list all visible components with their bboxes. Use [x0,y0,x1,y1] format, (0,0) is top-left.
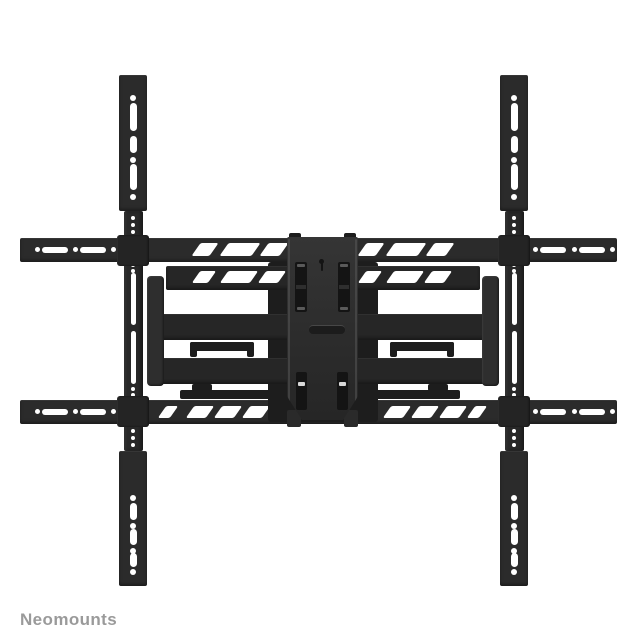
screw-hole [512,443,516,447]
vent-slot [424,271,452,283]
screw-hole [511,194,517,200]
slot-divider [339,285,349,289]
vesa-slot [511,529,518,545]
vent-slot [158,406,178,418]
screw-hole [130,157,136,163]
rail-clamp [117,235,149,266]
screw-hole [131,216,135,220]
vent-slot [242,406,270,418]
vent-slot [258,271,286,283]
screw-hole [131,230,135,234]
screw-hole [572,247,577,252]
rail-clamp [117,396,149,427]
screw-hole [111,247,116,252]
vesa-rail-left-lower [119,451,147,586]
screw-hole [35,409,40,414]
clip-foot [447,342,454,357]
vent-slot [383,406,411,418]
screw-hole [512,436,516,440]
spring-clip-left [190,342,254,357]
vesa-slot [511,103,518,131]
vesa-slot [130,529,137,545]
mounting-slot [80,409,106,415]
vent-slot [192,271,216,283]
vent-slot [439,406,467,418]
screw-hole [130,194,136,200]
slot-highlight [298,382,305,386]
vent-slot [186,406,214,418]
screw-hole [131,429,135,433]
small-clip [192,384,212,391]
vesa-rail-left-upper [119,75,147,211]
adjustment-slot [512,331,517,384]
vesa-slot [511,164,518,190]
keyhole-stem [321,263,323,271]
mounting-slot [540,247,566,253]
arm-elbow-right [482,276,499,386]
clip-foot [390,342,397,357]
vent-slot [411,406,439,418]
vesa-slot [130,103,137,131]
rail-clamp [498,396,530,427]
screw-hole [512,429,516,433]
spring-clip-right [390,342,454,357]
screw-hole [131,436,135,440]
screw-hole [512,387,516,391]
plate-edge-highlight [355,239,357,417]
screw-hole [73,247,78,252]
vent-slot [357,243,384,256]
vent-slot [425,243,454,256]
vesa-slot [130,164,137,190]
center-wall-plate [287,237,358,420]
screw-hole [111,409,116,414]
vent-slot [214,406,242,418]
plate-slot [296,372,307,410]
screw-hole [610,247,615,252]
vent-slot [220,271,258,283]
vent-slot [191,243,218,256]
adjustment-slot [131,331,136,384]
vesa-slot [130,503,137,520]
handle-recess [309,325,345,334]
screw-hole [130,495,136,501]
screw-hole [512,223,516,227]
screw-hole [130,95,136,101]
slot-highlight [340,307,348,310]
mounting-slot [42,409,68,415]
product-photo-tv-wall-mount: Neomounts [0,0,640,640]
vent-slot [259,243,288,256]
adjustment-slot [131,273,136,325]
mounting-slot [579,247,605,253]
brand-label: Neomounts [20,610,117,630]
mounting-slot [579,409,605,415]
screw-hole [610,409,615,414]
arm-elbow-left [147,276,164,386]
plate-slot [337,372,348,410]
screw-hole [130,569,136,575]
slot-highlight [340,264,348,267]
screw-hole [511,157,517,163]
slot-divider [296,285,306,289]
mounting-slot [540,409,566,415]
mounting-slot [42,247,68,253]
screw-hole [131,387,135,391]
vesa-rail-right-lower [500,451,528,586]
vesa-slot [511,136,518,153]
clip-foot [190,342,197,357]
screw-hole [533,409,538,414]
vent-slot [385,243,426,256]
clip-bar [390,342,454,351]
screw-hole [512,216,516,220]
rail-clamp [498,235,530,266]
plate-edge-highlight [288,239,290,417]
vesa-slot [130,136,137,153]
vesa-slot [511,503,518,520]
clip-bar [190,342,254,351]
screw-hole [511,95,517,101]
screw-hole [533,247,538,252]
screw-hole [35,247,40,252]
screw-hole [572,409,577,414]
slot-highlight [297,307,305,310]
vent-slot [219,243,260,256]
clip-foot [247,342,254,357]
mounting-slot [80,247,106,253]
vesa-rail-right-upper [500,75,528,211]
vent-slot [467,406,487,418]
screw-hole [131,443,135,447]
vent-slot [358,271,382,283]
adjustment-slot [512,273,517,325]
vesa-slot [511,553,518,567]
screw-hole [511,495,517,501]
slot-highlight [297,264,305,267]
slot-highlight [339,382,346,386]
screw-hole [511,569,517,575]
screw-hole [73,409,78,414]
vesa-slot [130,553,137,567]
vent-slot [386,271,424,283]
screw-hole [512,230,516,234]
screw-hole [131,223,135,227]
small-clip [428,384,448,391]
